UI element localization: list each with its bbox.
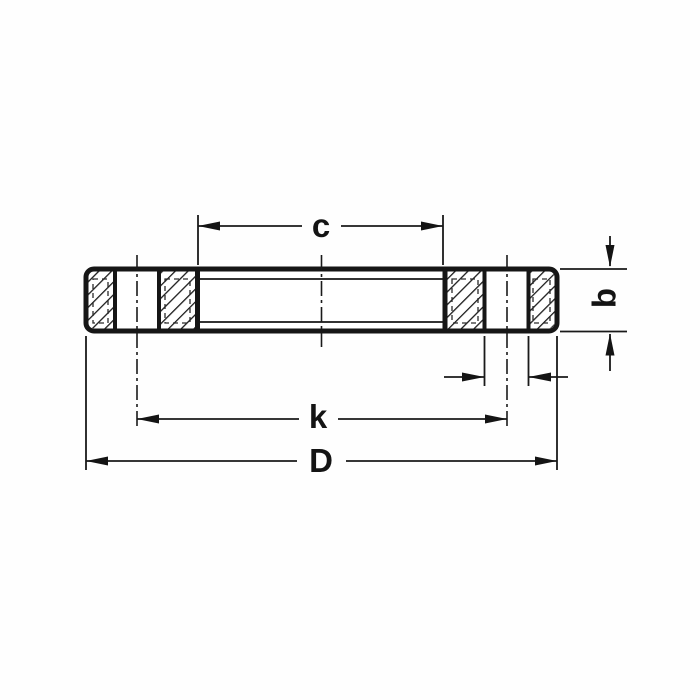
k-dimension-label: k <box>309 398 328 435</box>
D-arrow-left <box>86 457 108 466</box>
k-arrow-left <box>137 415 159 424</box>
dimension-c: c <box>198 207 443 265</box>
bolt-hole-arrow-right <box>462 373 485 382</box>
section-hatch-right-outer <box>531 272 555 329</box>
section-hatch-left-outer <box>89 272 115 329</box>
c-dimension-label: c <box>312 207 330 244</box>
dimension-b: b <box>560 236 627 371</box>
b-dimension-label: b <box>586 288 623 308</box>
dimension-bolt-hole <box>444 336 568 386</box>
drawing-page: c b k <box>0 0 700 700</box>
dimension-k: k <box>137 398 507 435</box>
c-arrow-left <box>198 222 220 231</box>
D-dimension-label: D <box>309 442 333 479</box>
flange-section-drawing: c b k <box>0 0 700 700</box>
b-arrow-up <box>606 334 615 356</box>
c-arrow-right <box>421 222 443 231</box>
bolt-hole-arrow-left <box>529 373 552 382</box>
b-arrow-down <box>606 245 615 267</box>
D-arrow-right <box>535 457 557 466</box>
k-arrow-right <box>485 415 507 424</box>
